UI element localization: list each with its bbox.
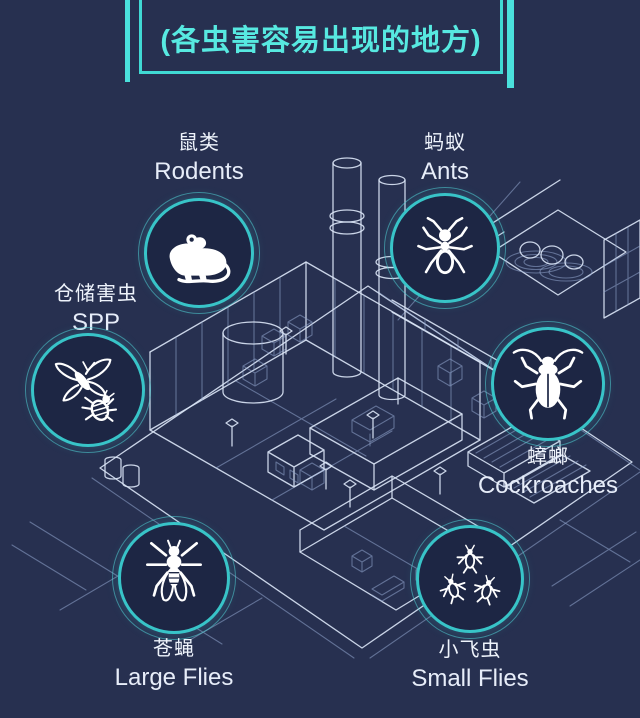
label-rodents-zh: 鼠类 [89,130,309,156]
moth-beetle-icon [46,348,130,432]
label-small-flies-en: Small Flies [360,663,580,694]
circle-ants [390,193,500,303]
ant-icon [407,210,483,286]
label-rodents: 鼠类 Rodents [89,130,309,187]
label-large-flies-en: Large Flies [64,662,284,693]
poster: (各虫害容易出现的地方) 鼠类 Rodents 蚂蚁 Ants [0,0,640,718]
label-small-flies: 小飞虫 Small Flies [360,637,580,694]
label-large-flies: 苍蝇 Large Flies [64,636,284,693]
three-flies-icon [428,537,512,621]
cockroach-icon [507,343,589,425]
label-large-flies-zh: 苍蝇 [64,636,284,662]
circle-large-flies [118,522,230,634]
label-small-flies-zh: 小飞虫 [360,637,580,663]
title-frame: (各虫害容易出现的地方) [139,0,503,74]
label-ants-en: Ants [335,156,555,187]
label-spp-zh: 仓储害虫 [0,281,206,307]
circle-small-flies [416,525,524,633]
label-cockroaches: 蟑螂 Cockroaches [438,444,640,501]
label-cockroaches-zh: 蟑螂 [438,444,640,470]
title-accent-bar-left [125,0,130,82]
rat-icon [159,219,239,287]
label-ants: 蚂蚁 Ants [335,130,555,187]
corner-accents [12,520,640,644]
title-accent-bar-right [507,0,514,88]
page-title: (各虫害容易出现的地方) [160,17,481,59]
circle-cockroaches [491,327,605,441]
label-rodents-en: Rodents [89,156,309,187]
label-ants-zh: 蚂蚁 [335,130,555,156]
mezzanine-room [268,435,324,487]
circle-spp [31,333,145,447]
fly-icon [134,538,214,618]
label-cockroaches-en: Cockroaches [438,470,640,501]
pin-poles [226,327,446,507]
